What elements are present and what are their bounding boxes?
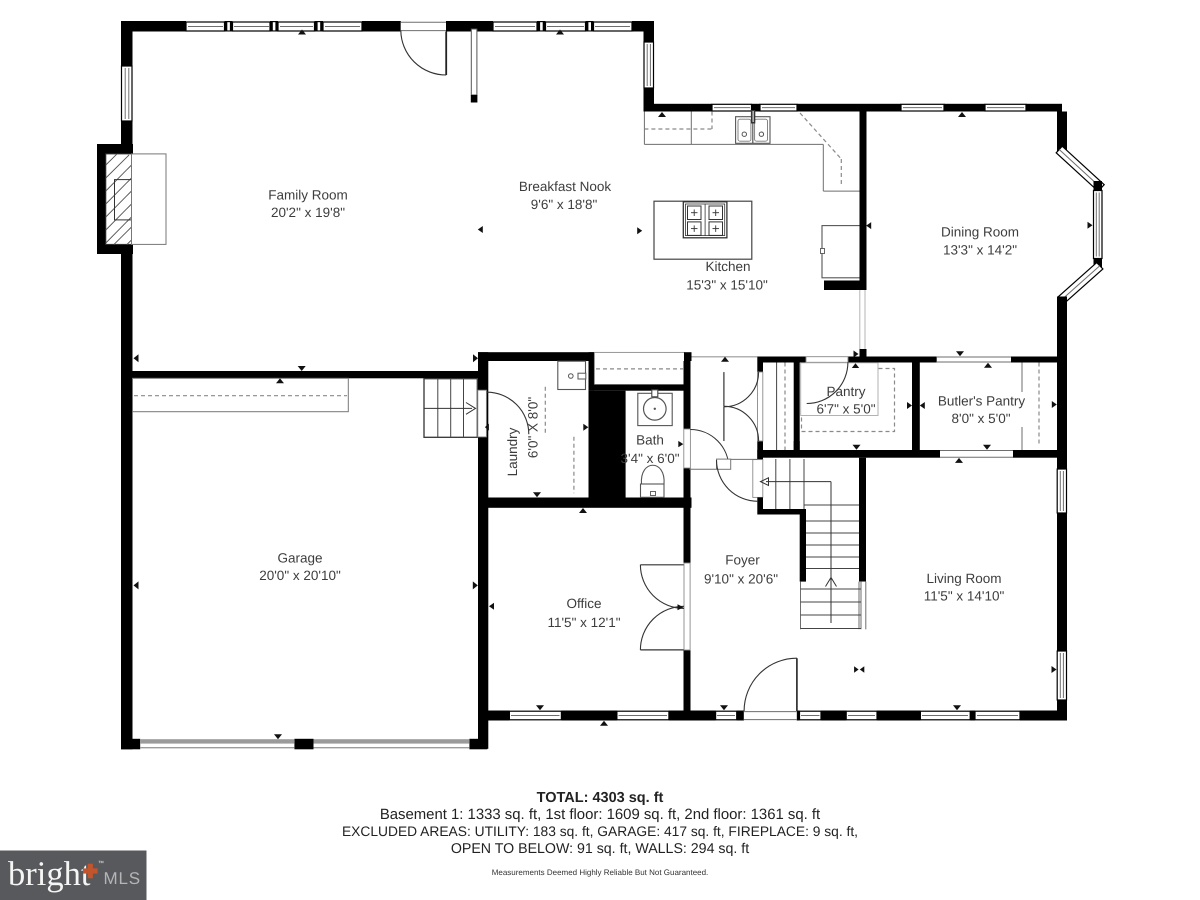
svg-text:Breakfast Nook: Breakfast Nook: [519, 179, 612, 194]
svg-text:Butler's Pantry: Butler's Pantry: [938, 394, 1026, 409]
svg-text:9'10" x 20'6": 9'10" x 20'6": [704, 572, 778, 587]
svg-text:Dining Room: Dining Room: [941, 225, 1019, 240]
svg-text:Laundry: Laundry: [505, 427, 520, 476]
svg-text:20'2" x 19'8": 20'2" x 19'8": [271, 205, 345, 220]
svg-text:bright: bright: [8, 855, 91, 893]
svg-text:Basement 1: 1333 sq. ft, 1st f: Basement 1: 1333 sq. ft, 1st floor: 1609…: [380, 807, 821, 823]
svg-text:Foyer: Foyer: [725, 553, 760, 568]
svg-text:6'7" x 5'0": 6'7" x 5'0": [816, 402, 875, 417]
svg-text:11'5" x 12'1": 11'5" x 12'1": [547, 615, 620, 630]
svg-text:Living Room: Living Room: [926, 571, 1001, 586]
svg-text:11'5" x 14'10": 11'5" x 14'10": [924, 589, 1005, 604]
svg-text:9'6" x 18'8": 9'6" x 18'8": [531, 197, 598, 212]
svg-text:Kitchen: Kitchen: [705, 259, 750, 274]
svg-text:15'3" x 15'10": 15'3" x 15'10": [686, 278, 768, 293]
svg-text:Pantry: Pantry: [826, 384, 865, 399]
svg-text:Measurements Deemed Highly Rel: Measurements Deemed Highly Reliable But …: [492, 868, 709, 877]
svg-text:6'0" X 8'0": 6'0" X 8'0": [526, 397, 541, 458]
svg-text:MLS: MLS: [104, 869, 141, 888]
svg-text:13'3" x 14'2": 13'3" x 14'2": [943, 243, 1017, 258]
svg-text:TOTAL: 4303 sq. ft: TOTAL: 4303 sq. ft: [537, 790, 664, 806]
svg-text:™: ™: [98, 860, 104, 867]
svg-text:OPEN TO BELOW: 91 sq. ft, WALL: OPEN TO BELOW: 91 sq. ft, WALLS: 294 sq.…: [451, 841, 749, 857]
svg-text:EXCLUDED AREAS: UTILITY: 183 s: EXCLUDED AREAS: UTILITY: 183 sq. ft, GAR…: [342, 824, 858, 839]
svg-text:Office: Office: [566, 596, 601, 611]
svg-text:8'0" x 5'0": 8'0" x 5'0": [951, 411, 1010, 426]
svg-text:Bath: Bath: [636, 433, 664, 448]
svg-text:20'0" x 20'10": 20'0" x 20'10": [259, 568, 341, 583]
svg-text:3'4" x 6'0": 3'4" x 6'0": [620, 451, 679, 466]
svg-text:Family Room: Family Room: [268, 188, 348, 203]
svg-text:Garage: Garage: [277, 551, 322, 566]
